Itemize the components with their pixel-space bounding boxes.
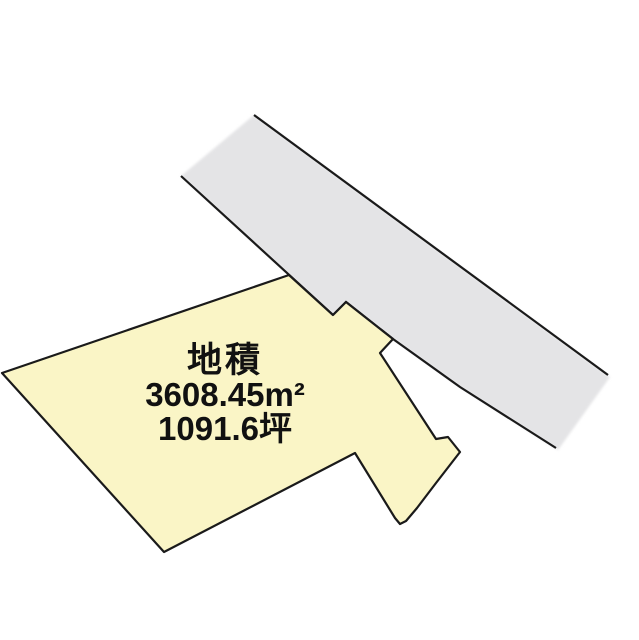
- parcel-area-tsubo: 1091.6坪: [145, 412, 305, 446]
- parcel-area-m2: 3608.45m²: [145, 378, 305, 412]
- land-plot-diagram: 地積 3608.45m² 1091.6坪: [0, 0, 639, 640]
- parcel-label-title: 地積: [145, 344, 305, 378]
- parcel-label: 地積 3608.45m² 1091.6坪: [145, 344, 305, 446]
- plot-map-canvas: [0, 0, 639, 640]
